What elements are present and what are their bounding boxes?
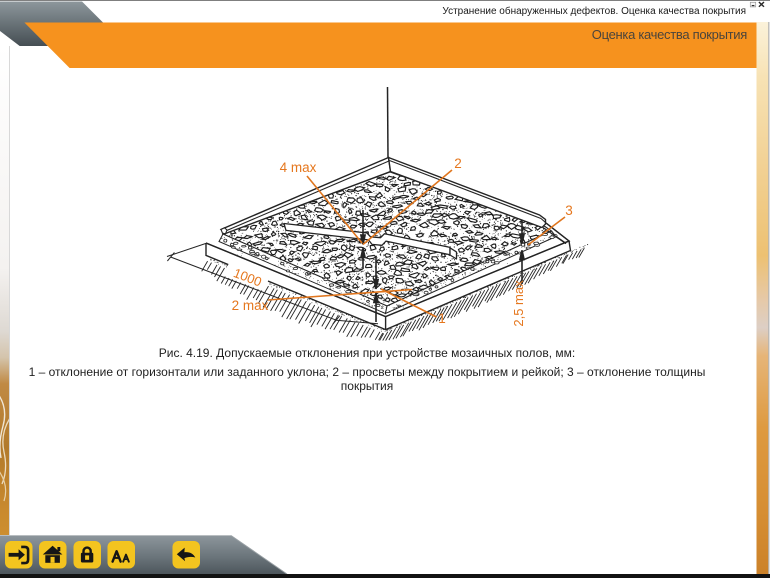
svg-text:2,5 max: 2,5 max [511, 280, 526, 327]
svg-text:2: 2 [454, 156, 462, 171]
svg-text:1000: 1000 [231, 265, 263, 289]
svg-text:4 max: 4 max [280, 160, 317, 175]
svg-text:1: 1 [438, 311, 446, 326]
svg-text:2 max: 2 max [232, 298, 269, 313]
svg-text:3: 3 [565, 203, 573, 218]
